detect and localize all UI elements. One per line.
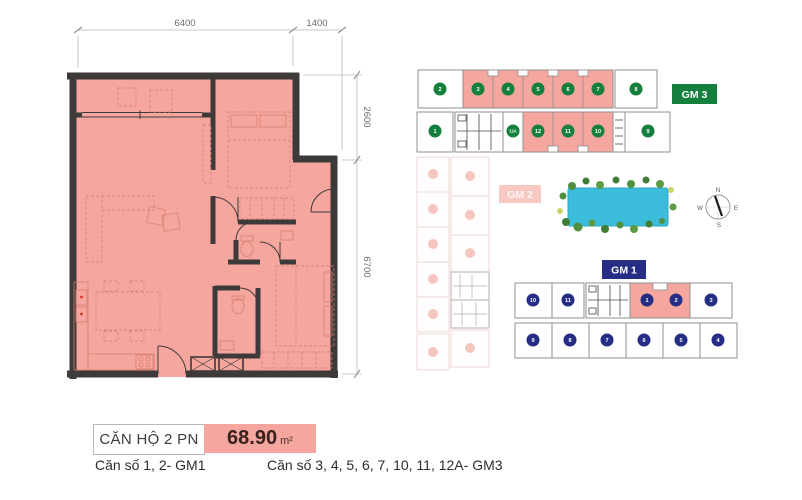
gm3-units-note: Căn số 3, 4, 5, 6, 7, 10, 11, 12A- GM3 (267, 457, 503, 473)
compass-rose: N E S W (697, 187, 738, 229)
dim-right-upper: 2600 (361, 106, 372, 127)
svg-text:7: 7 (596, 87, 599, 93)
compass-east: E (734, 205, 738, 212)
svg-text:5: 5 (536, 87, 539, 93)
core-block (586, 283, 630, 318)
svg-text:2: 2 (674, 298, 677, 304)
pool-area (557, 177, 677, 234)
floor-plan-infographic: 6400 1400 2600 6700 (0, 0, 802, 500)
gm1-units-note: Căn số 1, 2- GM1 (95, 457, 206, 473)
svg-text:10: 10 (595, 129, 601, 135)
area-value: 68.90 (227, 427, 277, 450)
apartment-type-box: CĂN HỘ 2 PN (93, 424, 205, 455)
swimming-pool (568, 188, 668, 226)
svg-text:12A: 12A (509, 129, 517, 134)
dim-top-width: 6400 (174, 18, 195, 29)
gm3-building: 2 3 4 5 6 7 8 1 12A 12 11 10 9 GM 3 (417, 70, 717, 152)
svg-text:12: 12 (535, 129, 541, 135)
svg-text:5: 5 (679, 338, 682, 344)
compass-south: S (717, 222, 721, 229)
svg-text:2: 2 (438, 87, 441, 93)
svg-text:8: 8 (568, 338, 571, 344)
apartment-type-label: CĂN HỘ 2 PN (99, 431, 198, 448)
svg-text:11: 11 (565, 298, 571, 304)
area-unit: m² (280, 435, 293, 447)
dim-right-lower: 6700 (361, 256, 372, 277)
gm3-label: GM 3 (682, 89, 708, 101)
svg-text:11: 11 (565, 129, 571, 135)
svg-text:6: 6 (566, 87, 569, 93)
gm1-label: GM 1 (611, 265, 637, 277)
apartment-area-box: 68.90 m² (204, 424, 316, 453)
svg-text:3: 3 (476, 87, 479, 93)
gm2-label: GM 2 (507, 189, 533, 201)
svg-text:7: 7 (605, 338, 608, 344)
svg-text:10: 10 (530, 298, 536, 304)
svg-text:1: 1 (433, 129, 436, 135)
dim-top-right: 1400 (306, 18, 327, 29)
svg-text:8: 8 (634, 87, 637, 93)
core-block (613, 112, 625, 152)
svg-text:6: 6 (642, 338, 645, 344)
apartment-floor-plan (67, 73, 338, 379)
compass-west: W (697, 205, 703, 212)
gm1-building: GM 1 10 11 1 2 3 9 8 7 6 5 4 (515, 260, 737, 358)
svg-text:1: 1 (645, 298, 648, 304)
svg-text:3: 3 (709, 298, 712, 304)
svg-text:9: 9 (531, 338, 534, 344)
compass-north: N (716, 187, 720, 194)
svg-text:9: 9 (646, 129, 649, 135)
